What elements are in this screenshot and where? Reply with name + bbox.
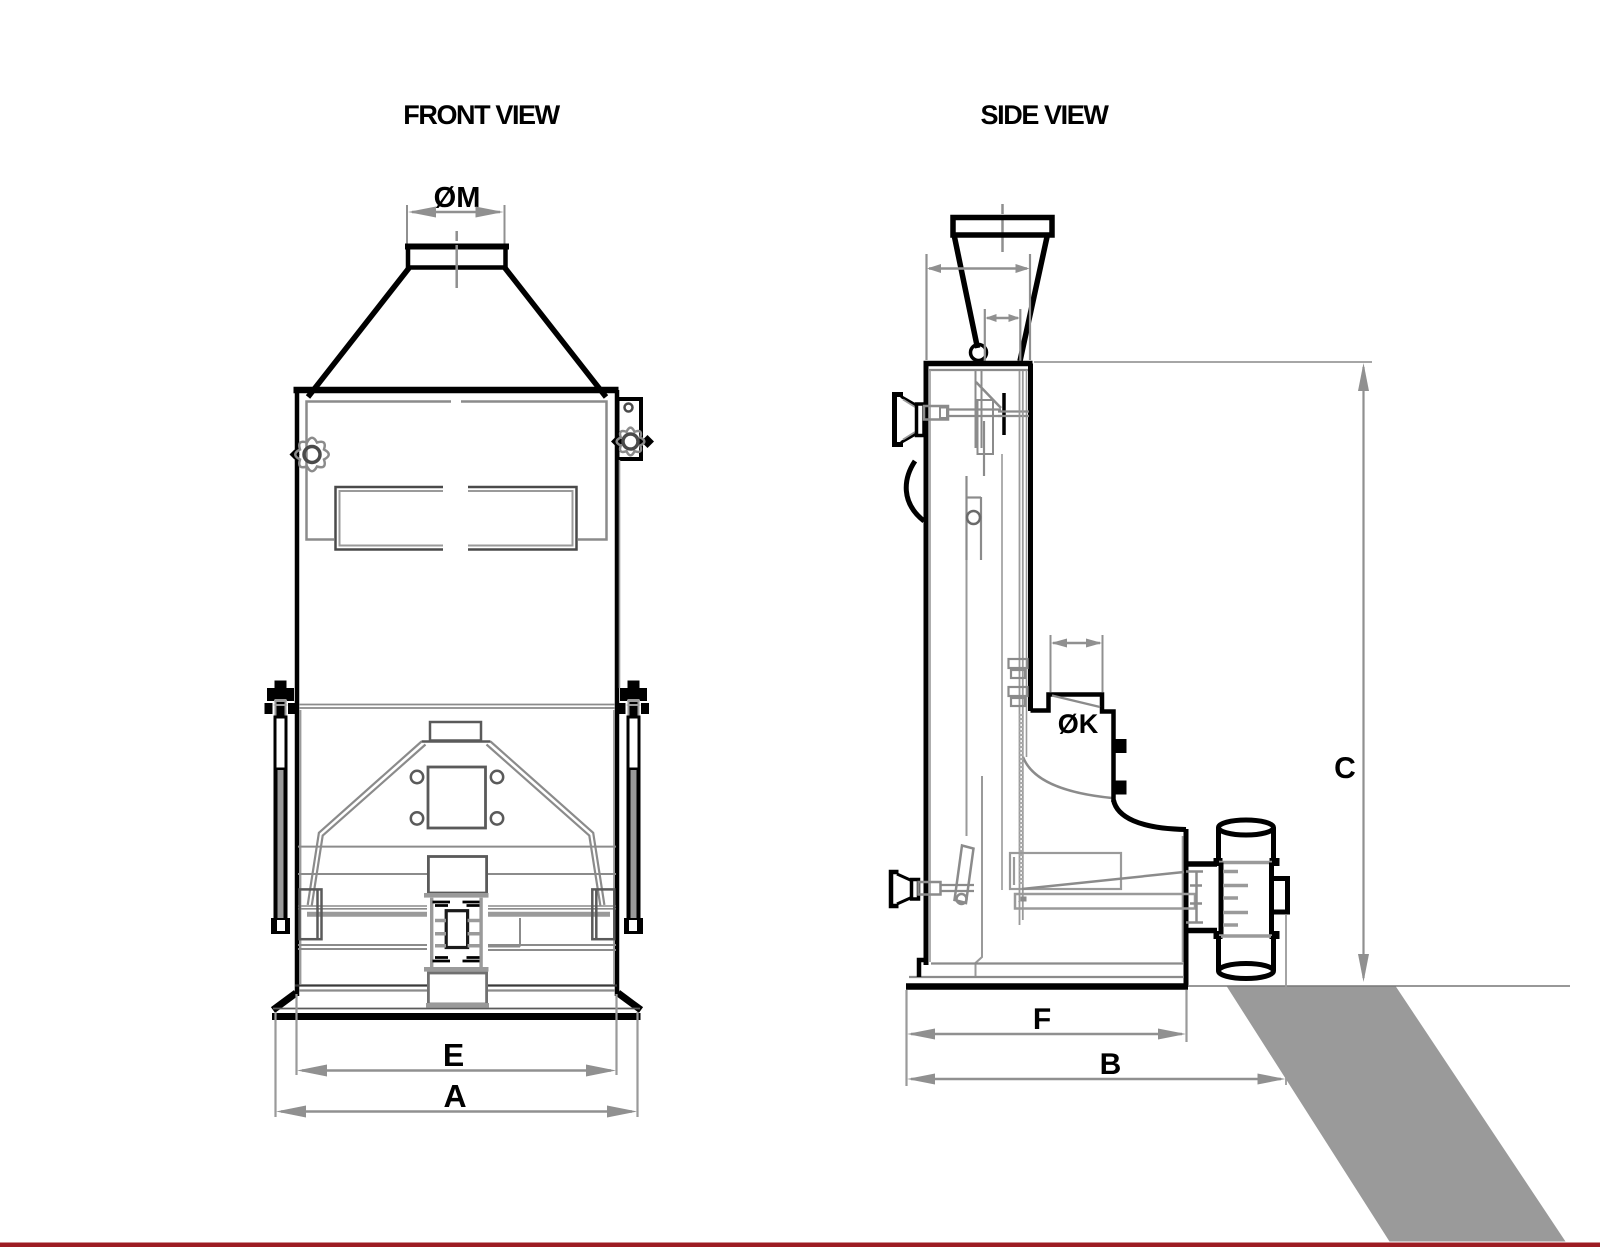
svg-text:SIDE VIEW: SIDE VIEW: [981, 100, 1110, 130]
svg-text:F: F: [1033, 1003, 1051, 1036]
svg-text:C: C: [1334, 752, 1356, 785]
svg-text:ØK: ØK: [1058, 709, 1099, 739]
svg-text:B: B: [1100, 1048, 1122, 1081]
svg-text:ØM: ØM: [434, 182, 481, 214]
svg-text:E: E: [443, 1037, 464, 1073]
svg-text:FRONT VIEW: FRONT VIEW: [403, 100, 560, 130]
svg-text:A: A: [443, 1078, 466, 1114]
